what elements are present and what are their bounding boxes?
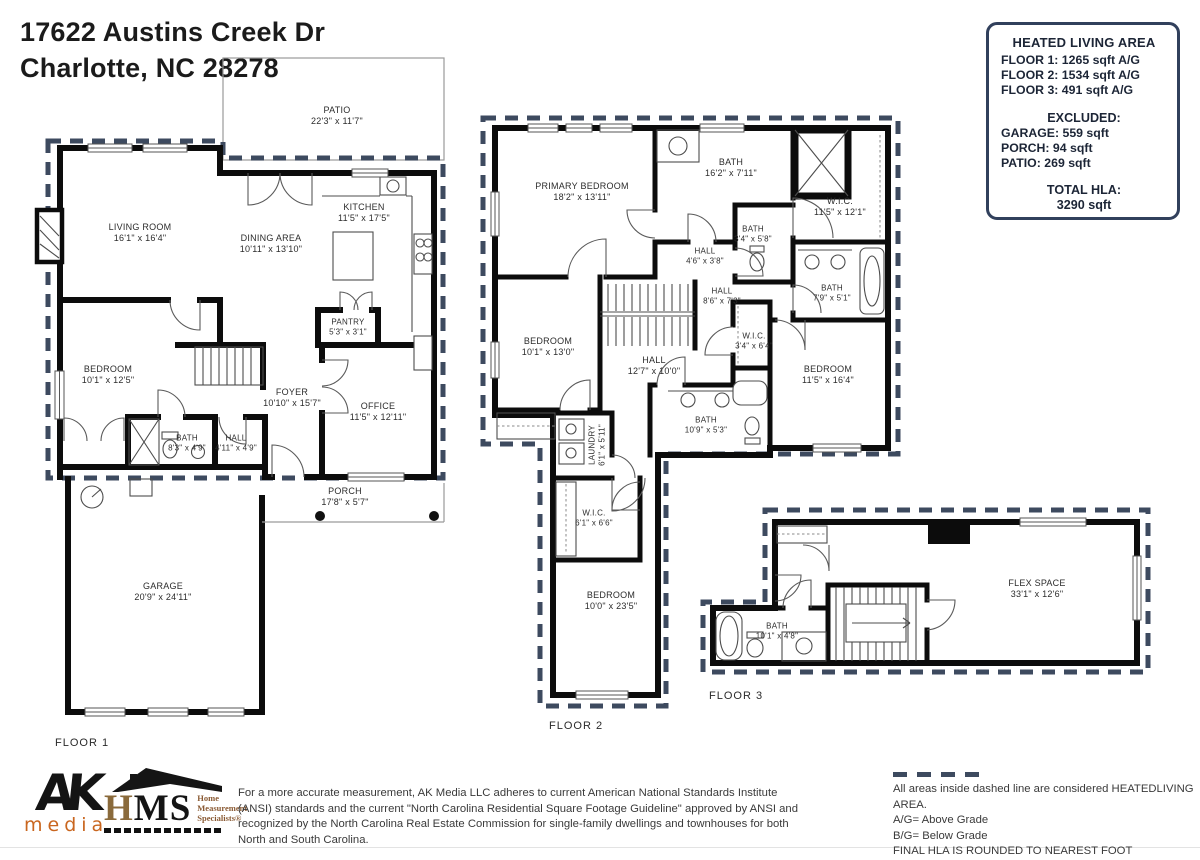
- room-label-porch: PORCH17'8" x 5'7": [321, 486, 368, 508]
- room-label-garage: GARAGE20'9" x 24'11": [134, 581, 191, 603]
- room-label-bath-f1: BATH8'3" x 4'9": [168, 434, 206, 453]
- floor-1-plan: [37, 58, 444, 716]
- room-label-bath-109: BATH10'9" x 5'3": [685, 416, 727, 435]
- room-label-bedroom-100: BEDROOM10'0" x 23'5": [585, 590, 638, 612]
- room-label-bath-small: BATH3'4" x 5'8": [734, 225, 772, 244]
- floor-3-windows: [1020, 518, 1141, 620]
- room-label-living-room: LIVING ROOM16'1" x 16'4": [109, 222, 172, 244]
- hms-logo: HMS Home Measurement Specialists®: [104, 766, 234, 833]
- floor-label-2: FLOOR 2: [549, 720, 603, 732]
- ak-media-logo: AK media: [24, 770, 108, 836]
- room-label-bath-f3: BATH10'1" x 4'8": [756, 622, 798, 641]
- disclaimer-text: For a more accurate measurement, AK Medi…: [238, 786, 800, 848]
- room-label-primary-bath: BATH16'2" x 7'11": [705, 157, 757, 179]
- floor-1-stairs-icon: [195, 347, 263, 385]
- room-label-wic-61: W.I.C.6'1" x 6'6": [575, 509, 613, 528]
- room-label-laundry: LAUNDRY6'1" x 5'11": [588, 424, 607, 466]
- room-label-wic-primary: W.I.C.11'5" x 12'1": [814, 196, 866, 218]
- ak-logo-text: AK: [22, 770, 111, 816]
- room-label-hall-small: HALL4'6" x 3'8": [686, 247, 724, 266]
- room-label-foyer: FOYER10'10" x 15'7": [263, 387, 321, 409]
- legend-line-2: A/G= Above Grade: [893, 813, 1200, 829]
- room-label-office: OFFICE11'5" x 12'11": [350, 401, 407, 423]
- hms-letters: HMS: [104, 792, 191, 826]
- legend-line-1: All areas inside dashed line are conside…: [893, 782, 1200, 813]
- room-label-kitchen: KITCHEN11'5" x 17'5": [338, 202, 390, 224]
- legend: All areas inside dashed line are conside…: [893, 772, 1200, 860]
- legend-line-4: FINAL HLA IS ROUNDED TO NEAREST FOOT: [893, 844, 1200, 860]
- kitchen-island: [333, 232, 373, 280]
- floor-2-stairs-icon: [600, 284, 695, 346]
- room-label-bedroom-101: BEDROOM10'1" x 13'0": [522, 336, 575, 358]
- floor-3-stairs-icon: [836, 587, 916, 661]
- room-label-pantry: PANTRY5'3" x 3'1": [329, 318, 367, 337]
- room-label-hall-main: HALL12'7" x 10'0": [628, 355, 681, 377]
- floor-1-walls: [37, 148, 434, 712]
- room-label-flex-space: FLEX SPACE33'1" x 12'6": [1008, 578, 1065, 600]
- floor-1-garage-fixtures: [81, 479, 152, 508]
- floor-1-windows: [55, 144, 404, 716]
- floor-3-plan: [703, 510, 1148, 672]
- room-label-hall-f1: HALL4'11" x 4'9": [215, 434, 257, 453]
- room-label-patio: PATIO22'3" x 11'7": [311, 105, 363, 127]
- floor-plan-page: 17622 Austins Creek Dr Charlotte, NC 282…: [0, 0, 1200, 847]
- room-label-bedroom-f1: BEDROOM10'1" x 12'5": [82, 364, 135, 386]
- room-label-hall-mid: HALL8'6" x 7'3": [703, 287, 741, 306]
- room-label-primary-bedroom: PRIMARY BEDROOM18'2" x 13'11": [535, 181, 628, 203]
- room-label-bath-79: BATH7'9" x 5'1": [813, 284, 851, 303]
- floor-label-1: FLOOR 1: [55, 737, 109, 749]
- heated-dash-sample-icon: [893, 772, 989, 777]
- floor-label-3: FLOOR 3: [709, 690, 763, 702]
- room-label-dining-area: DINING AREA10'11" x 13'10": [240, 233, 302, 255]
- room-label-wic-34: W.I.C.3'4" x 6'4": [735, 332, 773, 351]
- legend-line-3: B/G= Below Grade: [893, 829, 1200, 845]
- room-label-bedroom-115: BEDROOM11'5" x 16'4": [802, 364, 854, 386]
- footer: AK media HMS Home Measurement Specialist…: [0, 764, 1200, 847]
